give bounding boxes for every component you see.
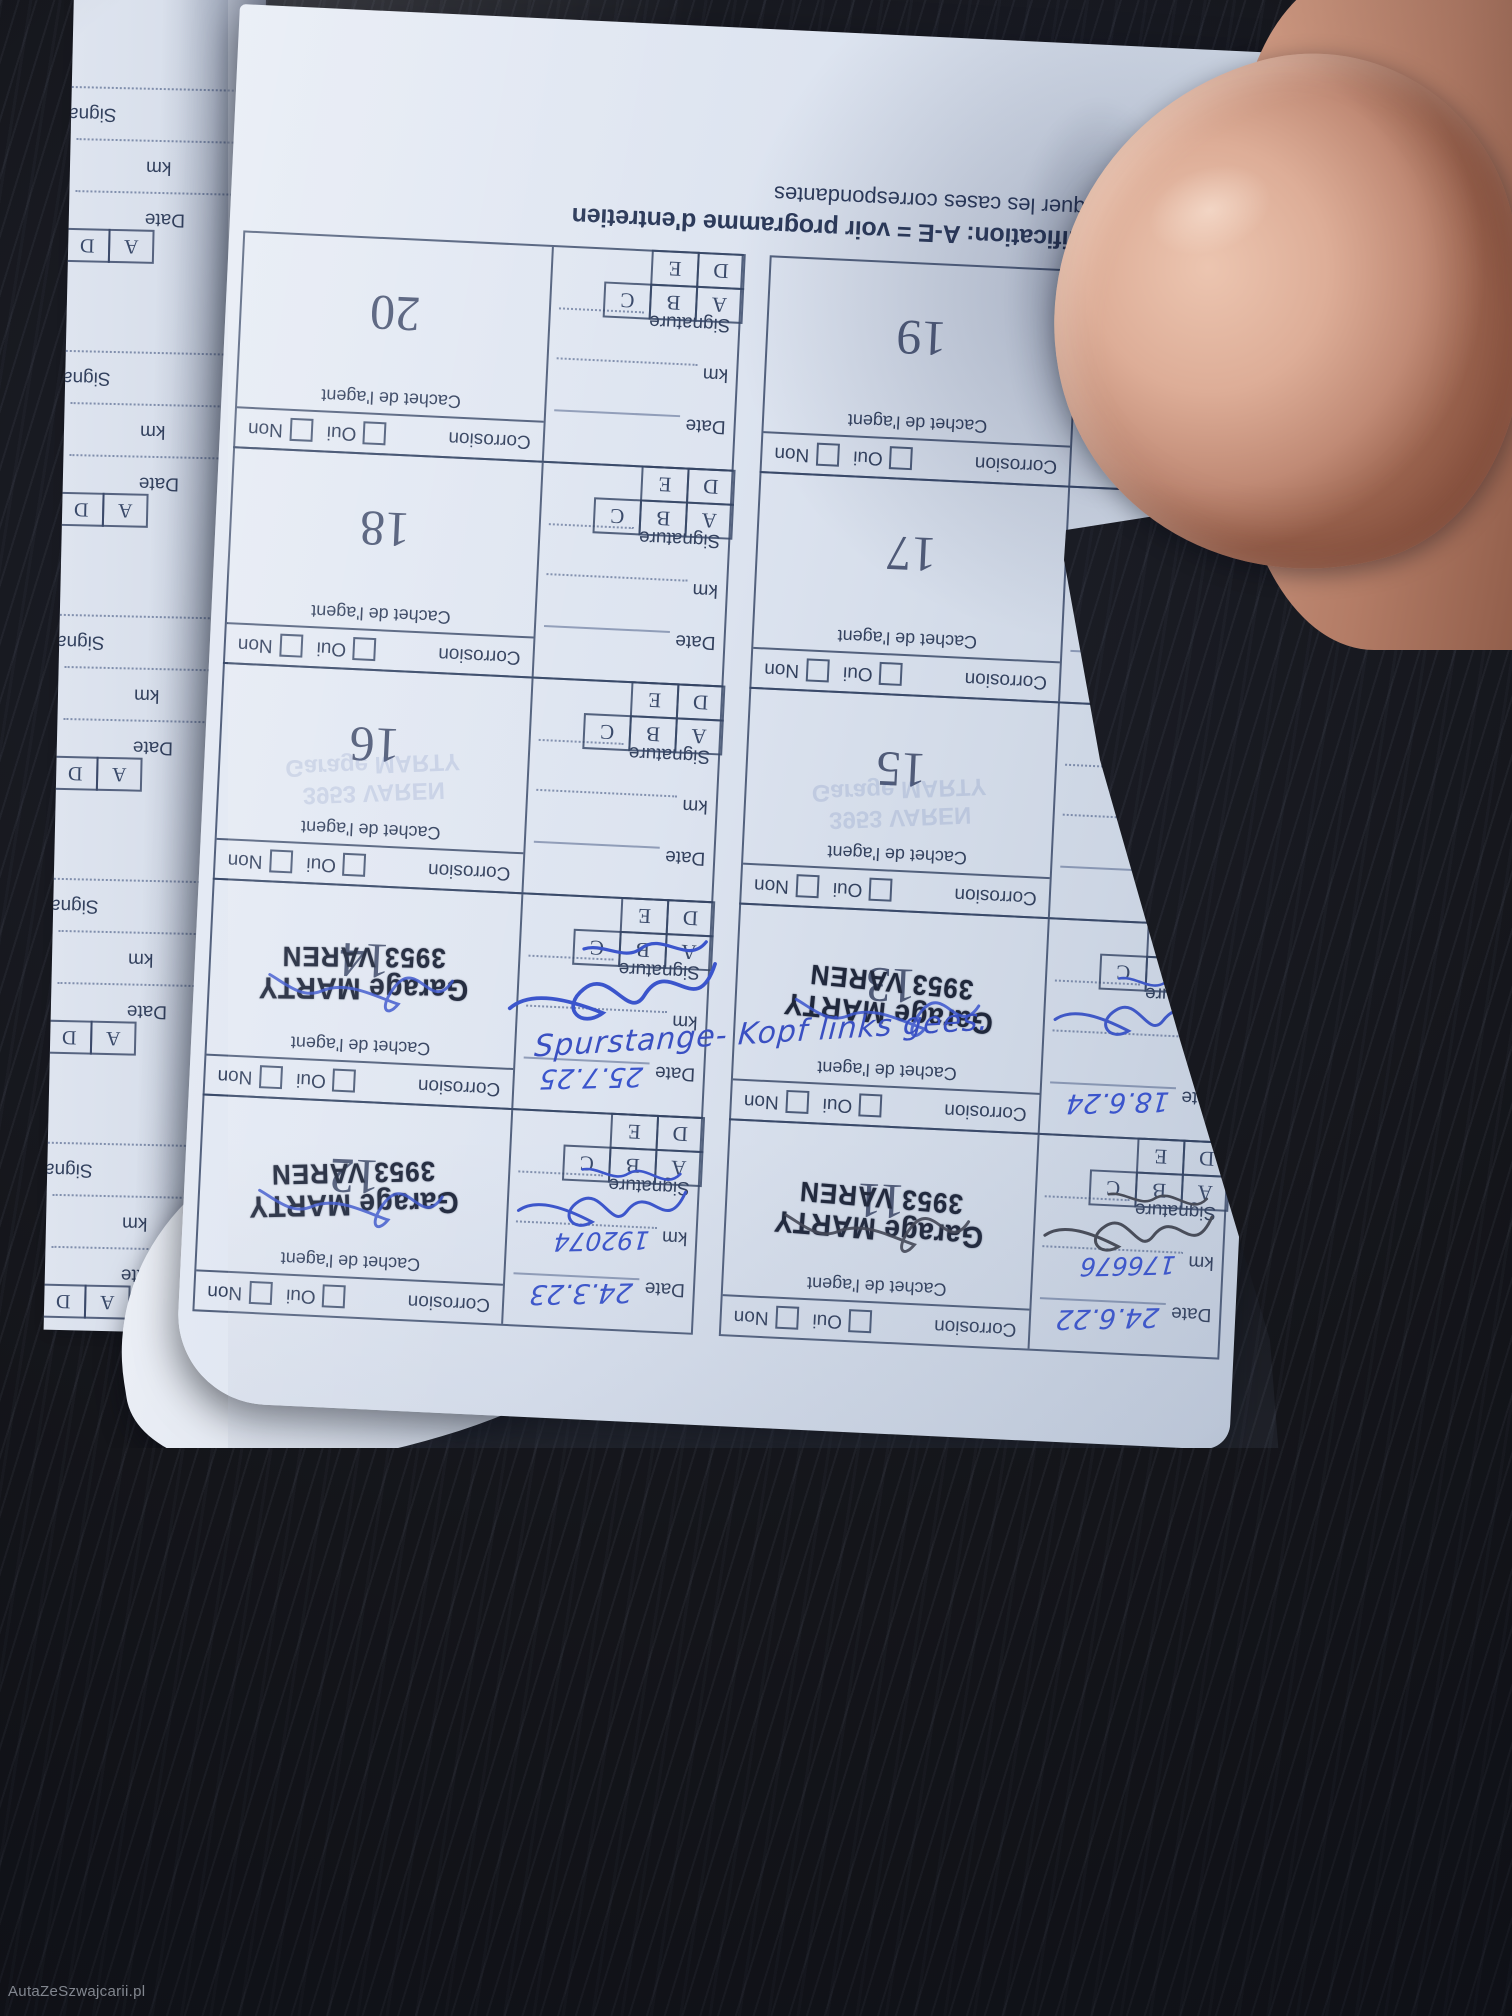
letter-cell-e: E — [1136, 1138, 1186, 1176]
km-label: km — [692, 580, 718, 600]
date-label: Date — [1171, 1303, 1212, 1324]
letter-cell-c: C — [603, 281, 653, 319]
service-box: Date 24.3.23 km 192074 Signature A B — [192, 1093, 703, 1334]
oui-checkbox — [353, 638, 377, 662]
program-letter-grid: A B C D E — [593, 463, 734, 537]
spacer — [390, 651, 438, 653]
non-label: Non — [207, 1280, 243, 1304]
non-label: Non — [764, 657, 800, 681]
date-label: Date — [665, 847, 706, 868]
non-checkbox — [785, 1090, 809, 1114]
oui-checkbox — [879, 662, 903, 686]
date-label: Date — [644, 1279, 685, 1300]
corrosion-label: Corrosion — [417, 1074, 500, 1100]
date-field: Date 24.6.22 — [1030, 1297, 1212, 1349]
date-field: Date 24.3.23 — [503, 1272, 685, 1324]
km-field: km — [536, 573, 718, 633]
date-field: Date — [544, 409, 726, 461]
cell-scribble — [253, 1154, 454, 1262]
service-box-fields-column: Date km Signature A B C — [542, 247, 742, 470]
cachet-cell: Corrosion Oui Non Cachet de l'agent 18 G… — [225, 448, 542, 676]
corrosion-row: Corrosion Oui Non — [721, 1294, 1030, 1348]
km-label: km — [702, 364, 728, 384]
spacer — [917, 676, 965, 678]
cachet-cell: Corrosion Oui Non Cachet de l'agent 16 G… — [215, 664, 532, 892]
non-checkbox — [775, 1306, 799, 1330]
service-box: Date km Signature A B C — [213, 662, 724, 903]
non-label: Non — [217, 1064, 253, 1088]
letter-cell-e: E — [650, 250, 700, 288]
date-field: Date — [524, 840, 706, 892]
signature-scribble — [509, 1150, 695, 1248]
non-label: Non — [774, 442, 810, 466]
spacer — [370, 1082, 418, 1084]
cachet-cell: Corrosion Oui Non Cachet de l'agent 14 G… — [205, 880, 522, 1108]
non-label: Non — [743, 1089, 779, 1113]
letter-cell-b: B — [638, 499, 688, 537]
date-handwriting: 25.7.25 — [539, 1061, 645, 1094]
spacer — [896, 1107, 944, 1109]
oui-label: Oui — [822, 1093, 853, 1116]
letter-cell-b: B — [628, 715, 678, 753]
corrosion-label: Corrosion — [448, 426, 531, 452]
oui-label: Oui — [843, 661, 874, 684]
date-label: Date — [675, 631, 716, 652]
non-checkbox — [816, 443, 840, 467]
background-fabric-bottom — [0, 1448, 1512, 2016]
service-box: Date km Signature A B C — [223, 446, 734, 687]
non-label: Non — [733, 1305, 769, 1329]
km-field: km — [526, 788, 708, 848]
non-checkbox — [279, 634, 303, 658]
spacer — [886, 1323, 934, 1325]
oui-label: Oui — [326, 421, 357, 444]
oui-checkbox — [849, 1310, 873, 1334]
oui-label: Oui — [853, 445, 884, 468]
bleed-through-ghost-stamp: 3953 VAREN Garage MARTY — [742, 690, 1057, 916]
corrosion-label: Corrosion — [934, 1314, 1017, 1340]
letter-cell-a: A — [695, 286, 745, 324]
non-checkbox — [249, 1281, 273, 1305]
letter-cell-e: E — [630, 681, 680, 719]
letter-cell-c: C — [592, 497, 642, 535]
non-label: Non — [248, 417, 284, 441]
letter-cell-d: D — [655, 1115, 705, 1153]
letter-cell-e: E — [609, 1113, 659, 1151]
oui-checkbox — [859, 1094, 883, 1118]
km-label: km — [682, 796, 708, 816]
ghost-line: 3953 VAREN — [828, 800, 971, 834]
corrosion-label: Corrosion — [407, 1289, 490, 1315]
oui-label: Oui — [286, 1284, 317, 1307]
oui-checkbox — [363, 422, 387, 446]
cell-scribble — [263, 938, 464, 1046]
non-checkbox — [289, 418, 313, 442]
corrosion-label: Corrosion — [964, 667, 1047, 693]
ghost-line: 3953 VAREN — [302, 775, 445, 809]
date-label: Date — [655, 1063, 696, 1084]
signature-scribble — [1035, 1175, 1221, 1273]
non-label: Non — [237, 633, 273, 657]
service-number: 18 — [228, 448, 542, 610]
corrosion-row: Corrosion Oui Non — [194, 1269, 503, 1323]
date-handwriting: 18.6.24 — [1065, 1085, 1171, 1118]
service-box: Date 25.7.25 km Signature A B — [203, 878, 714, 1119]
oui-label: Oui — [296, 1068, 327, 1091]
service-box-fields-column: Date 24.6.22 km 176676 Signature A B — [1028, 1135, 1228, 1358]
cachet-cell: Corrosion Oui Non Cachet de l'agent 15 G… — [741, 689, 1058, 917]
service-box-fields-column: Date km Signature A B C — [532, 463, 732, 686]
letter-cell-d: D — [686, 468, 736, 506]
letter-cell-d: D — [676, 683, 726, 721]
oui-label: Oui — [812, 1308, 843, 1331]
service-box-fields-column: Date 25.7.25 km Signature A B — [511, 894, 711, 1117]
spacer — [400, 435, 448, 437]
km-field: km — [546, 357, 728, 417]
cachet-cell: Corrosion Oui Non Cachet de l'agent 20 G… — [235, 233, 552, 461]
cachet-cell: Corrosion Oui Non Cachet de l'agent 11 G… — [721, 1120, 1038, 1348]
oui-label: Oui — [316, 636, 347, 659]
letter-cell-a: A — [674, 717, 724, 755]
letter-cell-e: E — [640, 465, 690, 503]
letter-cell-b: B — [649, 284, 699, 322]
letter-cell-d: D — [696, 252, 746, 290]
cell-scribble — [779, 1179, 980, 1287]
corrosion-label: Corrosion — [438, 642, 521, 668]
bleed-through-ghost-stamp: 3953 VAREN Garage MARTY — [216, 665, 531, 891]
service-box-fields-column: Date 24.3.23 km 192074 Signature A B — [501, 1110, 701, 1333]
service-box: Date km Signature A B C — [233, 230, 744, 471]
service-box-fields-column: Date km Signature A B C — [521, 678, 721, 901]
non-checkbox — [806, 659, 830, 683]
date-handwriting: 24.3.23 — [528, 1276, 634, 1309]
letter-cell-a: A — [684, 502, 734, 540]
spacer — [927, 460, 975, 462]
oui-checkbox — [332, 1069, 356, 1093]
corrosion-label: Corrosion — [944, 1098, 1027, 1124]
date-label: Date — [685, 415, 726, 436]
spacer — [360, 1298, 408, 1300]
letter-cell-c: C — [582, 713, 632, 751]
service-number: 20 — [238, 233, 552, 395]
date-handwriting: 24.6.22 — [1055, 1301, 1161, 1334]
program-letter-grid: A B C D E — [603, 248, 744, 322]
watermark: AutaZeSzwajcarii.pl — [8, 1983, 145, 2000]
photo-of-service-booklet: A D Date km Signature A D Date km Signat… — [0, 0, 1512, 2016]
oui-checkbox — [322, 1285, 346, 1309]
oui-checkbox — [889, 447, 913, 471]
program-letter-grid: A B C D E — [582, 679, 723, 753]
service-box: Date 24.6.22 km 176676 Signature A B — [719, 1118, 1230, 1359]
date-field: Date — [534, 625, 716, 677]
cachet-cell: Corrosion Oui Non Cachet de l'agent 12 G… — [194, 1096, 511, 1324]
non-checkbox — [259, 1066, 283, 1090]
